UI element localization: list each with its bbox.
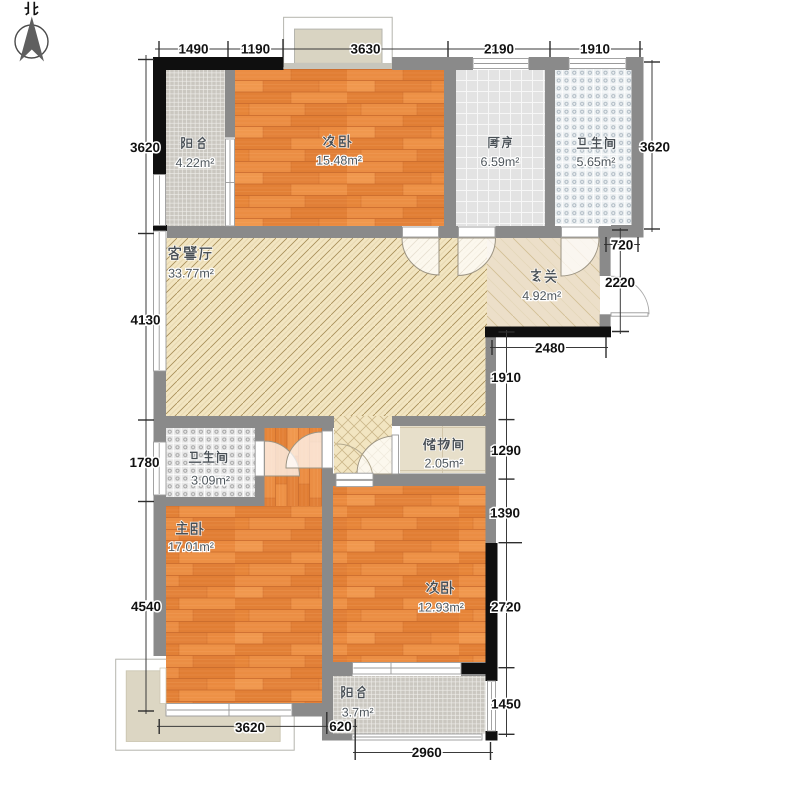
svg-text:1490: 1490	[178, 42, 208, 57]
svg-text:4.92m²: 4.92m²	[522, 289, 561, 303]
svg-text:1390: 1390	[490, 506, 520, 521]
svg-text:1290: 1290	[491, 443, 521, 458]
svg-text:1450: 1450	[491, 697, 521, 712]
svg-text:2960: 2960	[412, 745, 442, 760]
svg-text:720: 720	[611, 238, 634, 253]
svg-text:1780: 1780	[129, 455, 159, 470]
svg-text:2220: 2220	[605, 275, 635, 290]
svg-text:3620: 3620	[235, 720, 265, 735]
svg-text:4.22m²: 4.22m²	[176, 156, 215, 170]
svg-text:33.77m²: 33.77m²	[168, 267, 214, 281]
svg-text:1910: 1910	[580, 42, 610, 57]
svg-text:4130: 4130	[130, 313, 160, 328]
svg-text:2.05m²: 2.05m²	[425, 457, 464, 471]
svg-text:3.09m²: 3.09m²	[191, 473, 230, 487]
svg-text:3.7m²: 3.7m²	[342, 705, 374, 719]
svg-text:2480: 2480	[535, 341, 565, 356]
svg-text:6.59m²: 6.59m²	[481, 155, 520, 169]
svg-text:2190: 2190	[484, 42, 514, 57]
svg-text:17.01m²: 17.01m²	[168, 540, 214, 554]
svg-text:12.93m²: 12.93m²	[418, 600, 464, 614]
svg-text:620: 620	[329, 719, 352, 734]
svg-text:1190: 1190	[241, 42, 270, 57]
svg-text:3620: 3620	[640, 140, 670, 155]
svg-text:5.65m²: 5.65m²	[577, 155, 616, 169]
svg-text:15.48m²: 15.48m²	[316, 154, 362, 168]
svg-text:2720: 2720	[491, 600, 521, 615]
svg-text:4540: 4540	[131, 599, 161, 614]
svg-text:3620: 3620	[130, 140, 160, 155]
svg-text:1910: 1910	[491, 370, 521, 385]
svg-text:3630: 3630	[350, 42, 380, 57]
